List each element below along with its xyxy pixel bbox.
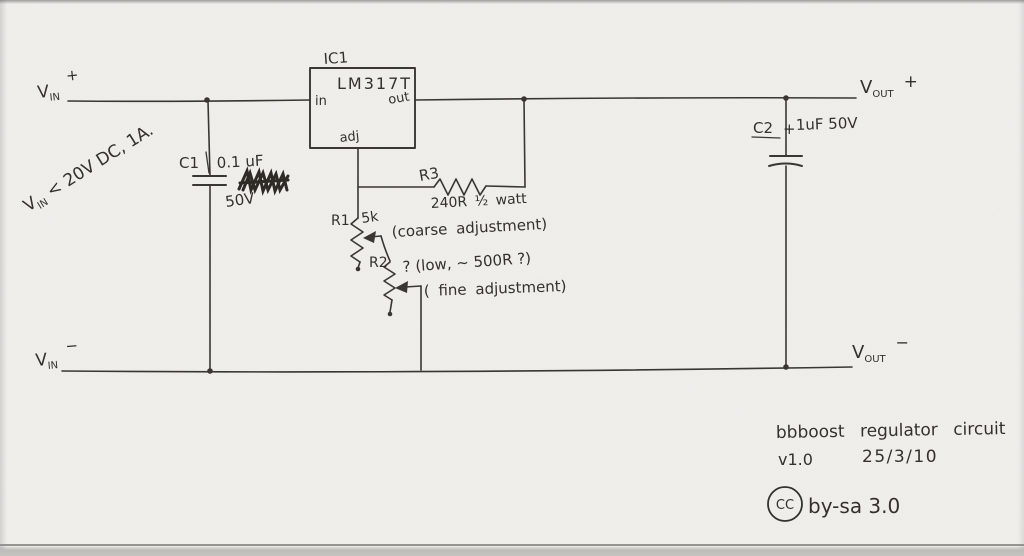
c1-ref: C1	[179, 154, 199, 172]
schematic-svg: VIN+ VIN− VOUT+ VOUT− VIN < 20V DC, 1A. …	[0, 0, 1024, 556]
cc-badge-text: CC	[776, 498, 794, 513]
schematic-version: v1.0	[778, 450, 813, 469]
wire-r3-up	[524, 99, 525, 187]
junction-dot	[207, 368, 213, 374]
ic1-pin-adj: adj	[339, 129, 360, 146]
scanned-schematic-page: VIN+ VIN− VOUT+ VOUT− VIN < 20V DC, 1A. …	[0, 0, 1024, 556]
c2-ref: C2	[753, 119, 773, 137]
r2-ref: R2	[369, 255, 388, 271]
r1-value: 5k	[360, 209, 380, 227]
r3-ref: R3	[418, 164, 441, 185]
junction-dot	[521, 96, 527, 102]
license-text: by-sa 3.0	[808, 494, 900, 518]
scan-edge-left	[0, 0, 7, 556]
c2-value: 1uF 50V	[796, 114, 859, 134]
junction-dot	[783, 364, 789, 370]
schematic-title: bbboost regulator circuit	[776, 419, 1006, 443]
scan-edge-top	[0, 0, 1024, 4]
scan-edge-bottom	[0, 544, 1024, 556]
ic1-ref: IC1	[323, 48, 349, 68]
r1-open-end-dot	[356, 267, 361, 272]
wire-r3-right	[486, 186, 525, 187]
junction-dot	[783, 95, 789, 101]
scan-edge-right	[1018, 0, 1024, 556]
c1-value: 0.1 uF	[216, 152, 264, 172]
c2-polarity: +	[783, 120, 796, 138]
r2-open-end-dot	[388, 312, 393, 317]
junction-dot	[204, 97, 210, 103]
ic1-pin-in: in	[315, 94, 327, 109]
schematic-date: 25/3/10	[862, 447, 938, 467]
r1-ref: R1	[331, 213, 350, 229]
